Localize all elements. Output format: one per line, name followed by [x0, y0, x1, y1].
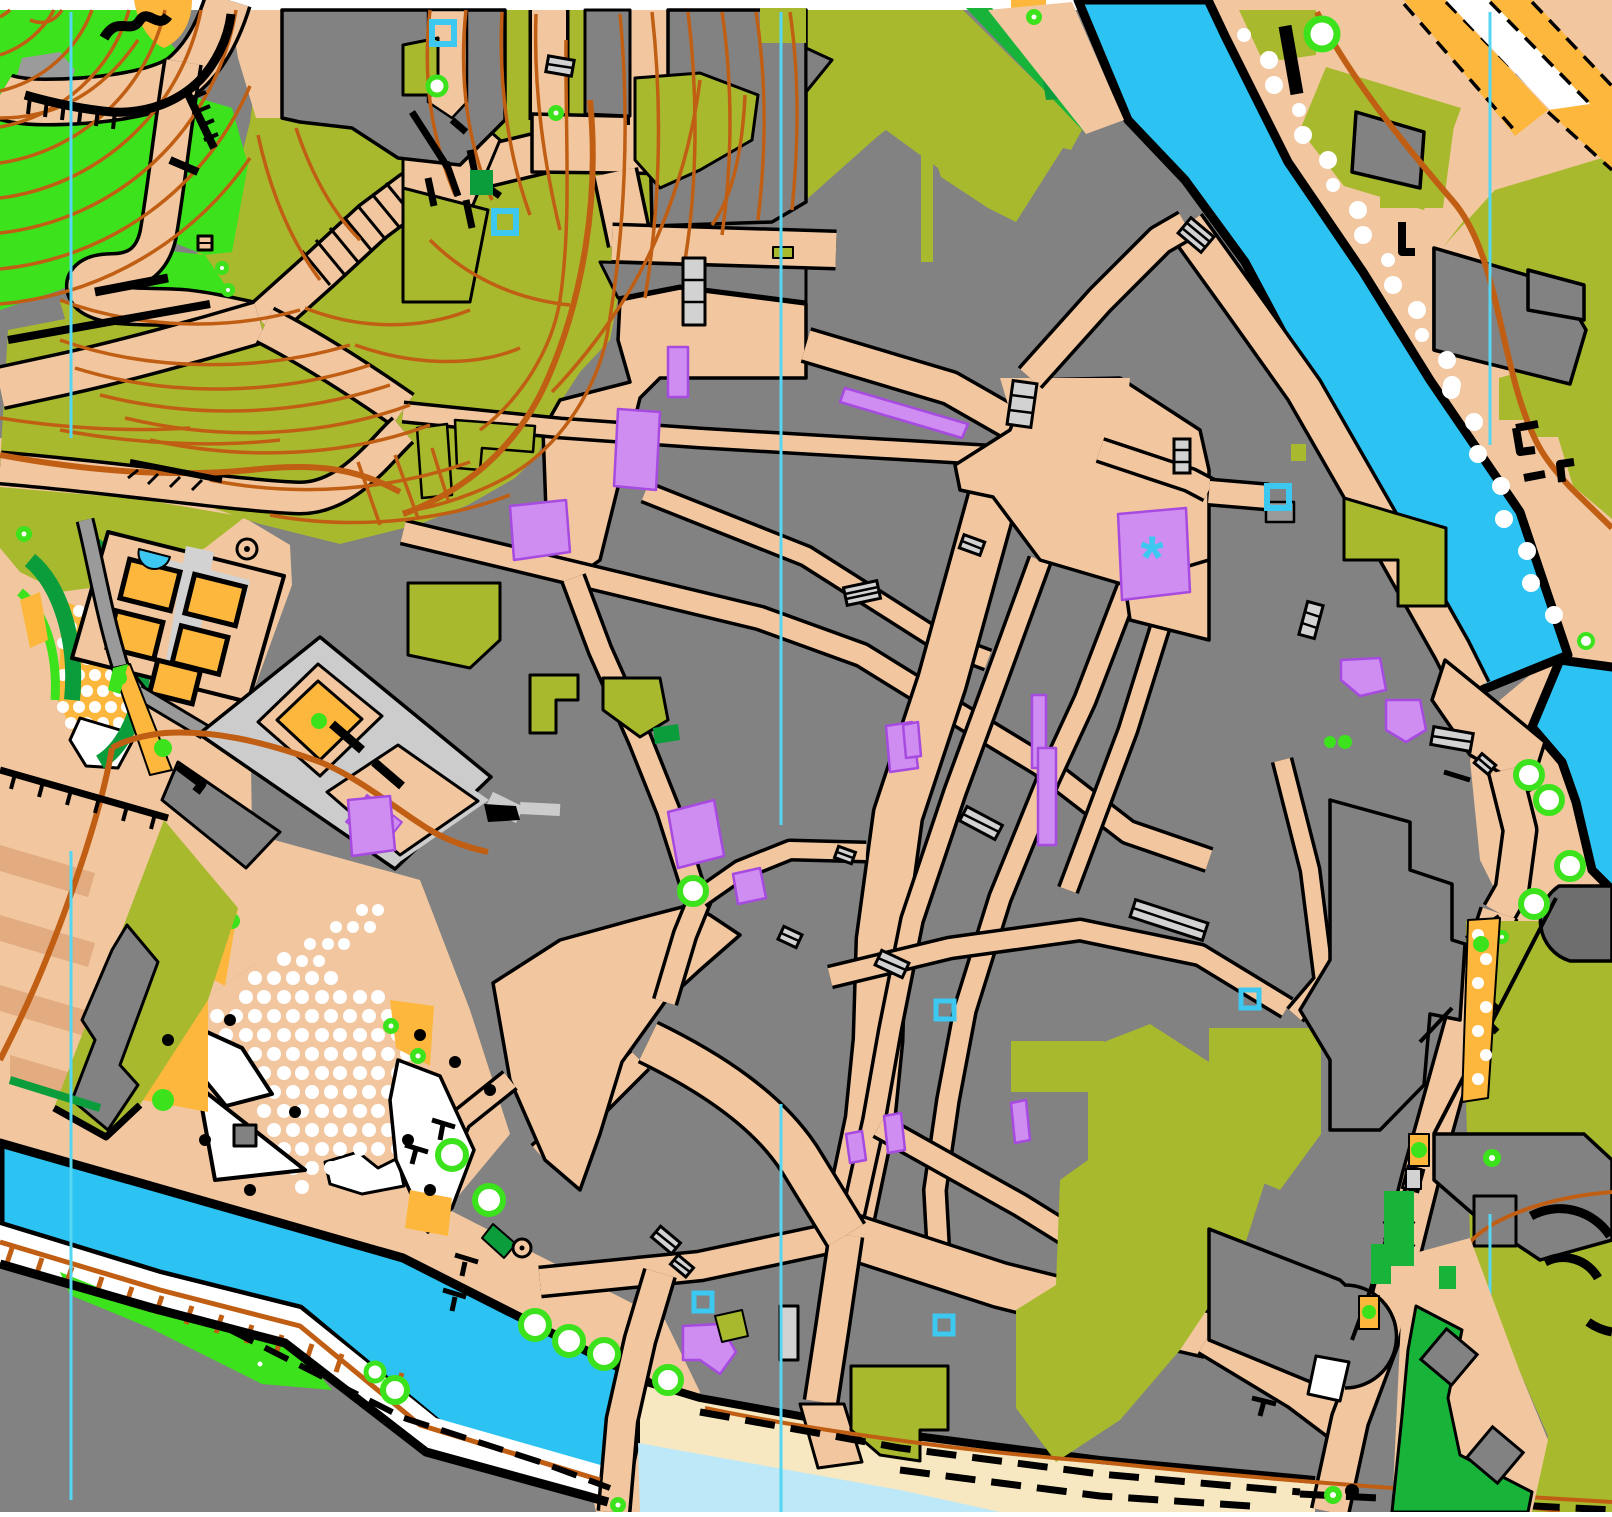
svg-text:*: *: [1140, 524, 1164, 591]
